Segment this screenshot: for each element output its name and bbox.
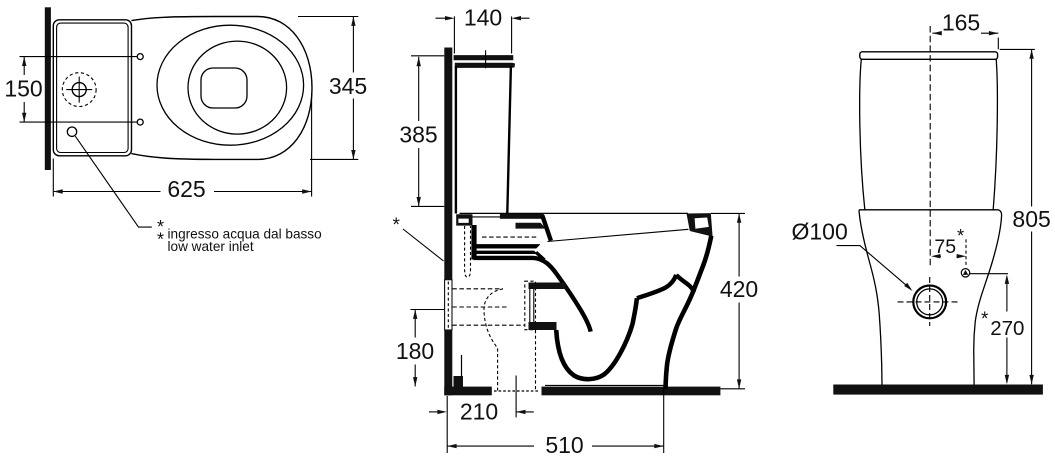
- svg-text:805: 805: [1012, 206, 1050, 232]
- svg-text:180: 180: [396, 338, 434, 364]
- svg-text:*: *: [157, 230, 164, 250]
- svg-text:140: 140: [464, 4, 502, 30]
- svg-text:low water inlet: low water inlet: [168, 239, 254, 254]
- svg-text:165: 165: [942, 10, 980, 36]
- svg-text:150: 150: [4, 75, 42, 101]
- svg-text:*: *: [393, 215, 401, 236]
- svg-text:210: 210: [460, 399, 498, 425]
- svg-text:*: *: [957, 225, 964, 246]
- svg-text:*: *: [981, 309, 989, 330]
- svg-text:510: 510: [545, 432, 583, 458]
- svg-text:345: 345: [329, 73, 367, 99]
- svg-text:420: 420: [720, 276, 758, 302]
- svg-text:270: 270: [990, 317, 1024, 340]
- svg-text:385: 385: [399, 122, 437, 148]
- svg-text:Ø100: Ø100: [792, 219, 848, 245]
- svg-text:625: 625: [167, 176, 205, 202]
